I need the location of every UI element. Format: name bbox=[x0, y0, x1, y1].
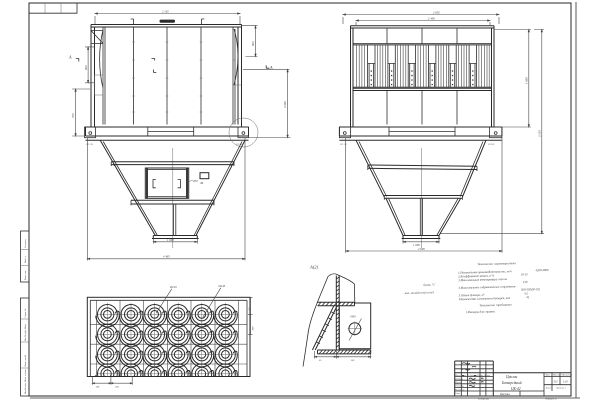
svg-text:Масштаб: Масштаб bbox=[561, 374, 573, 377]
svg-text:Согласов.: Согласов. bbox=[25, 239, 27, 248]
svg-text:1:10: 1:10 bbox=[563, 380, 569, 383]
svg-text:Циклоны: Циклоны bbox=[499, 393, 510, 396]
svg-text:Т.контр.: Т.контр. bbox=[455, 385, 464, 388]
svg-text:Технические требования: Технические требования bbox=[479, 302, 512, 307]
svg-text:800: 800 bbox=[84, 65, 88, 70]
svg-text:Справ. №: Справ. № bbox=[24, 309, 27, 318]
svg-text:30 30°: 30 30° bbox=[488, 143, 495, 146]
svg-text:Изм.Лист № докум. Подп. Дата: Изм.Лист № докум. Подп. Дата bbox=[454, 374, 490, 377]
svg-text:Пров.: Пров. bbox=[454, 381, 461, 384]
svg-text:Инв.№ подл. Подп. и дата: Инв.№ подл. Подп. и дата bbox=[24, 369, 27, 395]
svg-text:А(2): А(2) bbox=[309, 265, 318, 270]
svg-text:2 102: 2 102 bbox=[162, 9, 169, 13]
svg-text:ЦБ-42: ЦБ-42 bbox=[510, 387, 521, 391]
svg-text:1.Размеры для справок.: 1.Размеры для справок. bbox=[466, 309, 496, 314]
svg-text:Подп. и: Подп. и bbox=[24, 255, 27, 264]
svg-text:2 400: 2 400 bbox=[428, 17, 435, 21]
svg-text:800: 800 bbox=[251, 41, 255, 46]
svg-text:Листов 1: Листов 1 bbox=[555, 387, 566, 390]
svg-text:200: 200 bbox=[193, 179, 198, 183]
svg-text:Лит.: Лит. bbox=[544, 374, 551, 377]
svg-text:Циклон: Циклон bbox=[505, 375, 518, 379]
svg-text:4200-4800: 4200-4800 bbox=[535, 268, 549, 272]
svg-text:Инв.№ дубл. Подп.: Инв.№ дубл. Подп. bbox=[24, 323, 27, 342]
svg-text:A: A bbox=[269, 65, 273, 70]
svg-text:4 090: 4 090 bbox=[283, 101, 287, 108]
svg-text:A: A bbox=[68, 55, 72, 60]
svg-text:2 600: 2 600 bbox=[418, 247, 425, 251]
svg-text:30° 30: 30° 30 bbox=[340, 143, 347, 146]
svg-text:150: 150 bbox=[523, 280, 528, 284]
svg-text:10-15: 10-15 bbox=[521, 272, 529, 276]
svg-text:Разраб.: Разраб. bbox=[454, 378, 463, 381]
svg-text:700: 700 bbox=[71, 113, 75, 118]
svg-text:Лист: Лист bbox=[545, 387, 552, 390]
svg-text:Ø243: Ø243 bbox=[218, 284, 226, 288]
svg-text:Ø30: Ø30 bbox=[350, 314, 357, 318]
svg-text:Н.контр.: Н.контр. bbox=[454, 388, 465, 391]
svg-text:Утв.: Утв. bbox=[455, 392, 461, 395]
svg-text:Взам. инв.№: Взам. инв.№ bbox=[24, 355, 27, 367]
svg-text:Взам. инв.: Взам. инв. bbox=[25, 270, 27, 280]
svg-text:Ø219: Ø219 bbox=[169, 285, 177, 289]
svg-text:Масса: Масса bbox=[552, 374, 560, 377]
svg-text:1 600: 1 600 bbox=[167, 238, 174, 242]
svg-text:Батарейный: Батарейный bbox=[501, 380, 522, 385]
svg-text:3 130: 3 130 bbox=[537, 130, 541, 137]
svg-text:4 465: 4 465 bbox=[163, 255, 170, 259]
svg-text:1 980: 1 980 bbox=[524, 77, 528, 84]
svg-text:315: 315 bbox=[554, 380, 559, 383]
svg-text:2 602: 2 602 bbox=[433, 10, 440, 14]
